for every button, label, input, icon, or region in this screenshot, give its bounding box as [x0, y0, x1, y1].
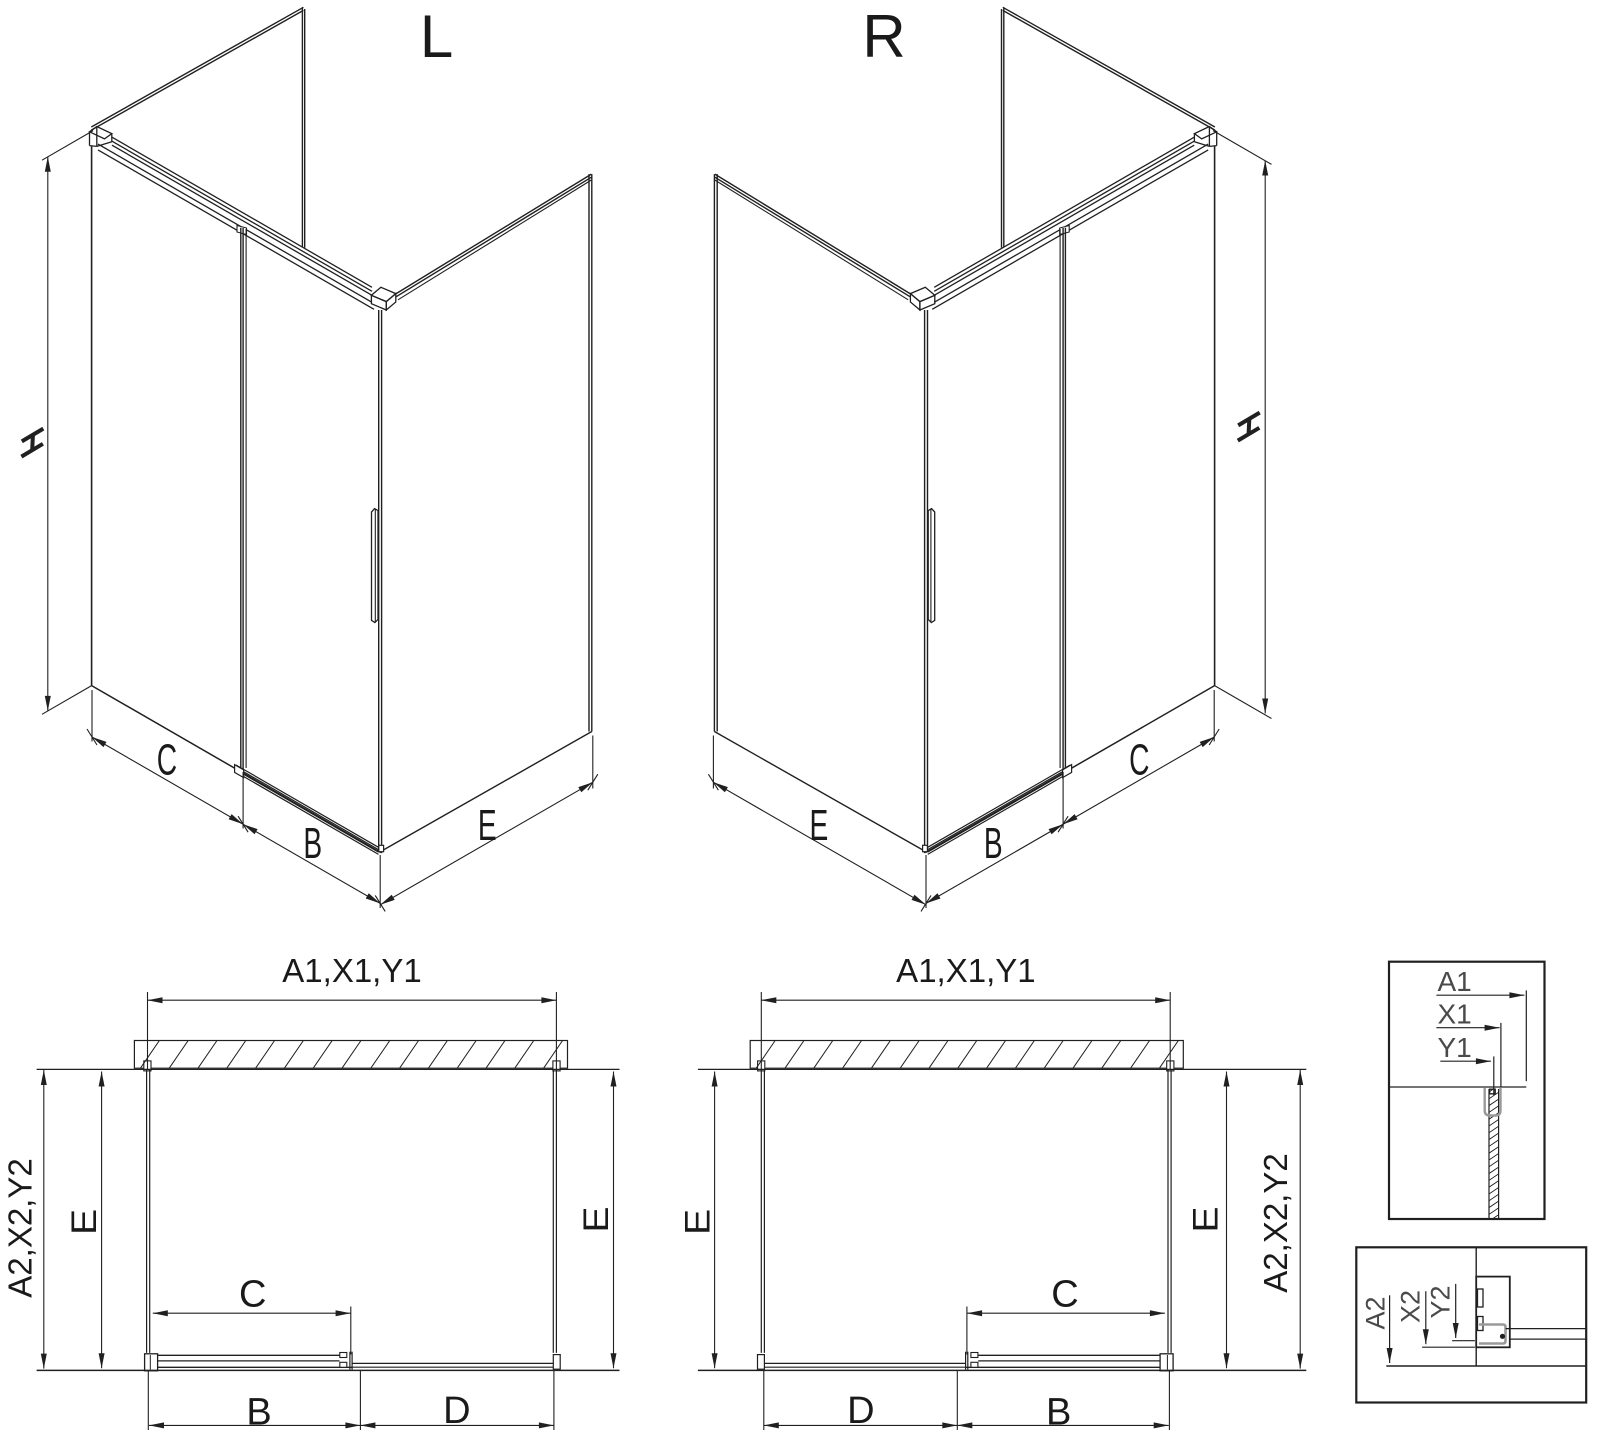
svg-text:X2: X2	[1396, 1290, 1426, 1323]
svg-text:X1: X1	[1438, 999, 1472, 1030]
svg-text:E: E	[1185, 1207, 1225, 1233]
svg-text:E: E	[478, 801, 497, 850]
svg-text:E: E	[678, 1209, 718, 1235]
svg-text:R: R	[862, 3, 905, 70]
svg-text:B: B	[303, 819, 322, 868]
svg-text:D: D	[847, 1390, 874, 1432]
svg-text:Y1: Y1	[1438, 1032, 1472, 1063]
svg-text:E: E	[810, 801, 829, 850]
svg-text:A2: A2	[1361, 1296, 1391, 1329]
svg-text:C: C	[239, 1274, 266, 1316]
svg-text:A1: A1	[1438, 966, 1472, 997]
svg-text:C: C	[1129, 735, 1149, 784]
svg-text:D: D	[443, 1390, 470, 1432]
svg-text:A2,X2,Y2: A2,X2,Y2	[1257, 1153, 1294, 1292]
svg-text:B: B	[1046, 1392, 1071, 1434]
svg-text:A2,X2,Y2: A2,X2,Y2	[2, 1158, 39, 1297]
svg-text:B: B	[246, 1392, 271, 1434]
svg-text:A1,X1,Y1: A1,X1,Y1	[282, 952, 421, 989]
svg-text:E: E	[64, 1209, 104, 1235]
svg-text:L: L	[420, 3, 453, 70]
svg-text:Y2: Y2	[1426, 1285, 1456, 1318]
svg-text:E: E	[576, 1207, 616, 1233]
svg-text:C: C	[1051, 1274, 1078, 1316]
svg-text:A1,X1,Y1: A1,X1,Y1	[896, 952, 1035, 989]
svg-text:B: B	[984, 819, 1003, 868]
svg-text:C: C	[157, 735, 177, 784]
